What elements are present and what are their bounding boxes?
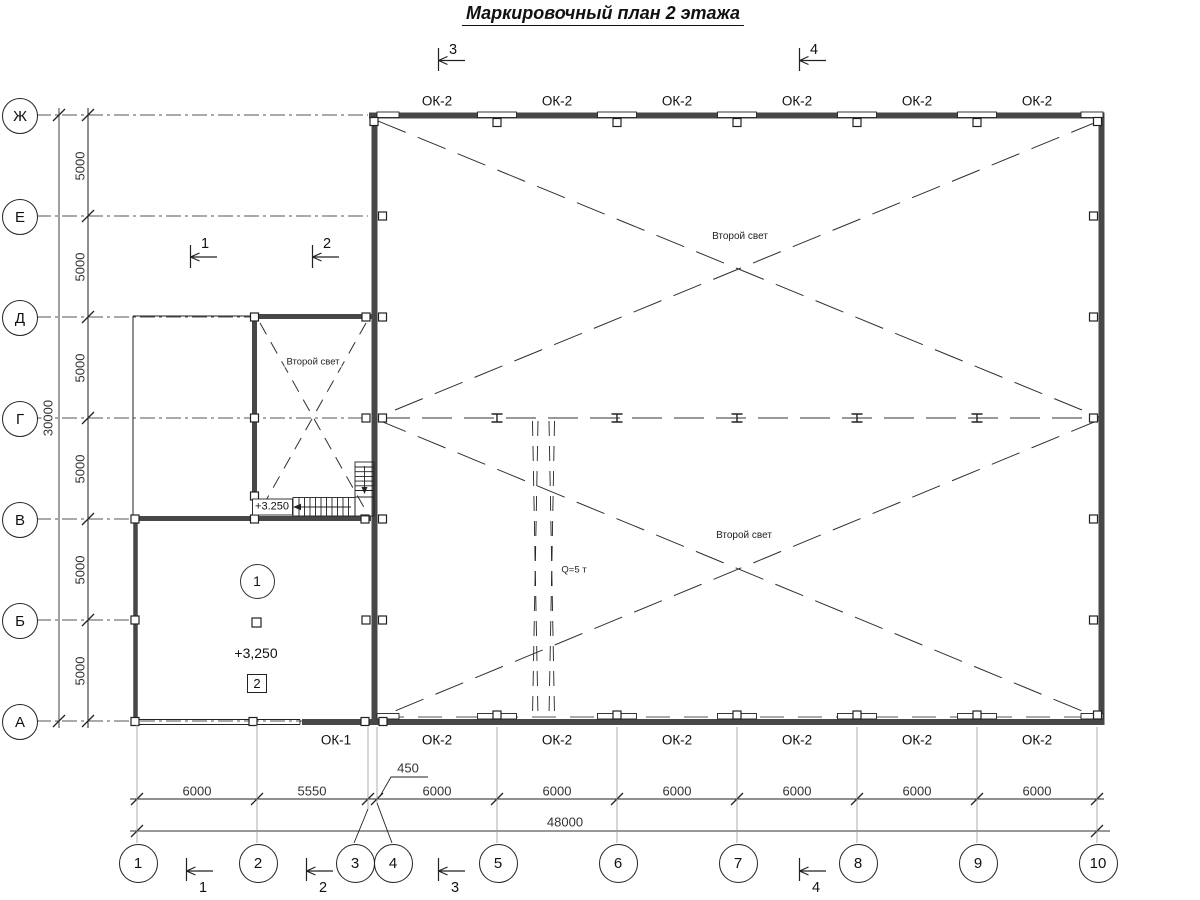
window-mark-top-4: ОК-2 bbox=[782, 94, 812, 108]
window-mark-bottom-6: ОК-2 bbox=[1022, 733, 1052, 747]
window-mark-bottom-3: ОК-2 bbox=[662, 733, 692, 747]
stair-level-mark: +3.250 bbox=[255, 502, 289, 513]
dimension-ticks bbox=[53, 109, 1103, 837]
axis-bubble-col-3: 3 bbox=[336, 844, 375, 883]
h-dim-450: 450 bbox=[395, 762, 421, 775]
window-mark-top-5: ОК-2 bbox=[902, 94, 932, 108]
axis-bubble-col-7: 7 bbox=[719, 844, 758, 883]
v-dim-5000-5: 5000 bbox=[74, 553, 87, 586]
v-dim-5000-2: 5000 bbox=[74, 250, 87, 283]
axis-bubble-row-g: Г bbox=[2, 401, 38, 437]
axis-bubble-row-a: А bbox=[2, 704, 38, 740]
section-number-bottom-2: 2 bbox=[319, 881, 327, 896]
axis-bubble-col-6: 6 bbox=[599, 844, 638, 883]
axis-bubble-col-4: 4 bbox=[374, 844, 413, 883]
h-dim-6000-c: 6000 bbox=[541, 785, 574, 798]
second-light-label-annex: Второй свет bbox=[284, 357, 341, 367]
extension-lines bbox=[137, 725, 1097, 843]
window-mark-top-2: ОК-2 bbox=[542, 94, 572, 108]
plan-linework bbox=[0, 0, 1200, 900]
axis-bubble-col-5: 5 bbox=[479, 844, 518, 883]
crane-hoist-lines bbox=[533, 421, 555, 716]
v-dim-5000-4: 5000 bbox=[74, 452, 87, 485]
axis-bubble-row-d: Д bbox=[2, 300, 38, 336]
axis-bubble-row-b: Б bbox=[2, 603, 38, 639]
window-mark-bottom-5: ОК-2 bbox=[902, 733, 932, 747]
h-dim-total-48000: 48000 bbox=[545, 816, 585, 829]
h-dim-6000-a: 6000 bbox=[181, 785, 214, 798]
room-number-bubble: 1 bbox=[240, 564, 275, 599]
drawing-title: Маркировочный план 2 этажа bbox=[462, 4, 744, 26]
v-dim-5000-6: 5000 bbox=[74, 654, 87, 687]
section-number-top-3: 3 bbox=[449, 43, 457, 58]
v-dim-5000-1: 5000 bbox=[74, 149, 87, 182]
section-number-mid-1: 1 bbox=[201, 237, 209, 252]
room-tag-box: 2 bbox=[247, 674, 267, 693]
floor-plan-drawing: Маркировочный план 2 этажа Ж Е Д Г В Б А… bbox=[0, 0, 1200, 900]
h-dim-6000-f: 6000 bbox=[901, 785, 934, 798]
dimension-lines bbox=[53, 108, 1110, 843]
window-mark-top-3: ОК-2 bbox=[662, 94, 692, 108]
room-level-mark: +3,250 bbox=[231, 646, 280, 660]
section-number-top-4: 4 bbox=[810, 43, 818, 58]
h-dim-5550: 5550 bbox=[296, 785, 329, 798]
axis-bubble-row-zh: Ж bbox=[2, 98, 38, 134]
axis-bubble-col-2: 2 bbox=[239, 844, 278, 883]
section-number-bottom-1: 1 bbox=[199, 881, 207, 896]
axis-grid-lines bbox=[36, 115, 368, 721]
axis-bubble-col-8: 8 bbox=[839, 844, 878, 883]
window-mark-top-6: ОК-2 bbox=[1022, 94, 1052, 108]
axis-bubble-row-v: В bbox=[2, 502, 38, 538]
section-number-bottom-3: 3 bbox=[451, 881, 459, 896]
axis-bubble-col-1: 1 bbox=[119, 844, 158, 883]
stair-direction-arrow-icon bbox=[293, 504, 301, 510]
v-dim-total-30000: 30000 bbox=[42, 398, 55, 438]
v-dim-5000-3: 5000 bbox=[74, 351, 87, 384]
window-mark-top-1: ОК-2 bbox=[422, 94, 452, 108]
leader-lines bbox=[354, 777, 428, 843]
axis-bubble-col-9: 9 bbox=[959, 844, 998, 883]
window-mark-bottom-1: ОК-2 bbox=[422, 733, 452, 747]
section-number-bottom-4: 4 bbox=[812, 881, 820, 896]
window-mark-bottom-ok1: ОК-1 bbox=[321, 733, 351, 747]
section-mark-arrows bbox=[187, 48, 827, 881]
h-dim-6000-b: 6000 bbox=[421, 785, 454, 798]
window-mark-bottom-2: ОК-2 bbox=[542, 733, 572, 747]
axis-bubble-row-e: Е bbox=[2, 199, 38, 235]
second-light-label-upper: Второй свет bbox=[710, 232, 770, 242]
axis-bubble-col-10: 10 bbox=[1079, 844, 1118, 883]
h-dim-6000-g: 6000 bbox=[1021, 785, 1054, 798]
crane-capacity-label: Q=5 т bbox=[559, 565, 588, 575]
second-light-label-lower: Второй свет bbox=[714, 531, 774, 541]
window-mark-bottom-4: ОК-2 bbox=[782, 733, 812, 747]
h-dim-6000-d: 6000 bbox=[661, 785, 694, 798]
h-dim-6000-e: 6000 bbox=[781, 785, 814, 798]
walls bbox=[133, 113, 1105, 726]
section-number-mid-2: 2 bbox=[323, 237, 331, 252]
